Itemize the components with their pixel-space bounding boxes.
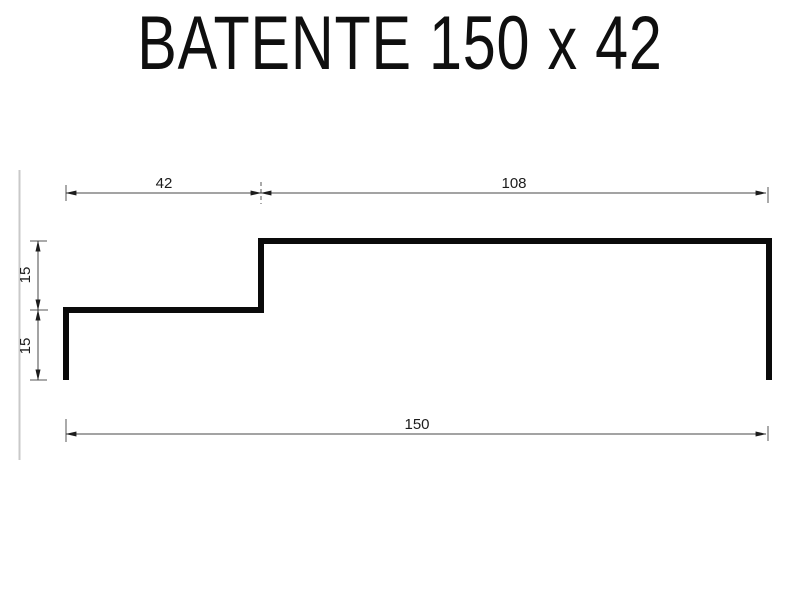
profile-outline: [66, 241, 769, 380]
drawing-page: BATENTE 150 x 42 42 108: [0, 0, 800, 600]
dimension-top-main-width: 108: [261, 175, 768, 203]
dimension-total-width: 150: [66, 416, 768, 442]
dimension-label: 42: [156, 175, 173, 192]
dimension-label: 15: [17, 338, 34, 355]
dimension-label: 150: [404, 416, 429, 433]
dimension-label: 108: [501, 175, 526, 192]
profile-drawing: 42 108 15 15 150: [0, 0, 800, 600]
dimension-top-step-width: 42: [66, 175, 261, 204]
dimension-left-heights: 15 15: [17, 241, 48, 380]
dimension-label: 15: [17, 267, 34, 284]
